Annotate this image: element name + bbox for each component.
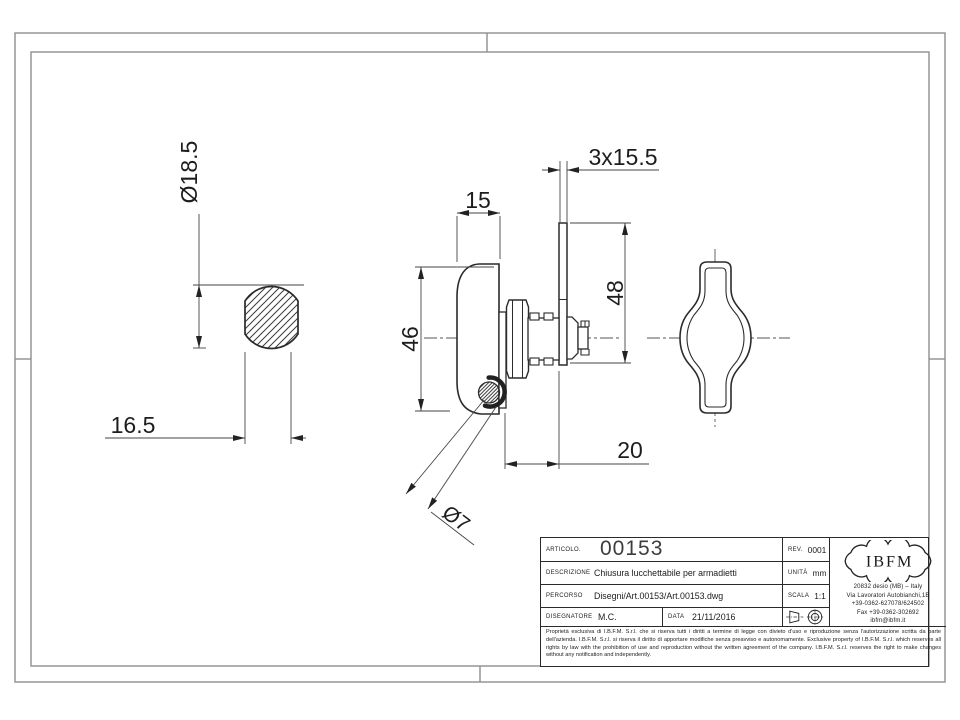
dim-height: 46 <box>397 326 423 352</box>
shaft-collar <box>567 317 578 359</box>
rev-label: REV. <box>783 547 803 553</box>
side-view <box>424 223 622 414</box>
articolo-value: 00153 <box>600 538 663 561</box>
unita-label: UNITÀ <box>783 570 808 576</box>
address-line: ibfm@ibfm.it <box>847 617 930 626</box>
padlock-hole <box>479 382 500 403</box>
drawing-sheet: Ø18.5 16.5 15 46 48 3x15.5 20 Ø7 ARTICOL… <box>0 0 960 720</box>
threaded-barrel <box>528 318 559 360</box>
dim-padlock-hole: Ø7 <box>438 501 474 536</box>
scala-value: 1:1 <box>814 591 826 601</box>
shaft-stub <box>578 327 588 349</box>
articolo-label: ARTICOLO. <box>541 547 594 553</box>
address-line: 20832 desio (MB) – Italy <box>847 583 930 592</box>
dim-cam-length: 48 <box>602 280 628 306</box>
disegnatore-label: DISEGNATORE <box>541 614 598 620</box>
front-view <box>647 249 790 427</box>
percorso-label: PERCORSO <box>541 593 594 599</box>
first-angle-projection-icon <box>784 608 828 626</box>
legal-notice: Proprietà esclusiva di I.B.F.M. S.r.l. c… <box>541 627 946 666</box>
descrizione-label: DESCRIZIONE <box>541 570 594 576</box>
unita-value: mm <box>813 568 827 578</box>
dim-depth: 15 <box>465 187 491 213</box>
logo-text: IBFM <box>866 554 914 571</box>
data-label: DATA <box>663 614 692 620</box>
rev-value: 0001 <box>808 545 827 555</box>
data-cell: DATA 21/11/2016 <box>663 608 782 626</box>
address-line: Via Lavoratori Autobianchi,1B <box>847 592 930 601</box>
ibfm-logo: IBFM <box>830 540 946 582</box>
projection-symbol-cell <box>783 608 830 627</box>
row4: DISEGNATORE M.C. DATA 21/11/2016 <box>541 608 783 627</box>
company-cell: IBFM 20832 desio (MB) – Italy Via Lavora… <box>830 538 946 627</box>
address-line: +39-0362-627078/624502 <box>847 600 930 609</box>
company-address: 20832 desio (MB) – Italy Via Lavoratori … <box>847 583 930 626</box>
rev-cell: REV. 0001 <box>783 538 830 562</box>
data-value: 21/11/2016 <box>692 612 735 622</box>
hex-nut <box>507 300 529 378</box>
cam-plate <box>559 223 567 365</box>
unita-cell: UNITÀ mm <box>783 562 830 585</box>
descrizione-value: Chiusura lucchettabile per armadietti <box>594 568 737 578</box>
address-line: Fax +39-0362-302692 <box>847 609 930 618</box>
scala-label: SCALA <box>783 593 809 599</box>
percorso-cell: PERCORSO Disegni/Art.00153/Art.00153.dwg <box>541 585 783 608</box>
disegnatore-cell: DISEGNATORE M.C. <box>541 608 663 626</box>
dim-left-width: 16.5 <box>111 412 156 438</box>
disegnatore-value: M.C. <box>598 612 617 622</box>
percorso-value: Disegni/Art.00153/Art.00153.dwg <box>594 591 723 601</box>
cam-section-profile <box>245 287 298 349</box>
dim-cam-section: 3x15.5 <box>588 144 657 170</box>
title-block: ARTICOLO. 00153 REV. 0001 DESCRIZIONE Ch… <box>540 537 929 667</box>
wing-knob-outer <box>680 262 751 413</box>
scala-cell: SCALA 1:1 <box>783 585 830 608</box>
descrizione-cell: DESCRIZIONE Chiusura lucchettabile per a… <box>541 562 783 585</box>
dim-cam-offset: 20 <box>617 437 643 463</box>
left-section-view <box>245 287 298 349</box>
retainer-clip-bottom <box>581 349 589 355</box>
dim-left-diameter: Ø18.5 <box>176 141 202 204</box>
articolo-cell: ARTICOLO. 00153 <box>541 538 783 562</box>
